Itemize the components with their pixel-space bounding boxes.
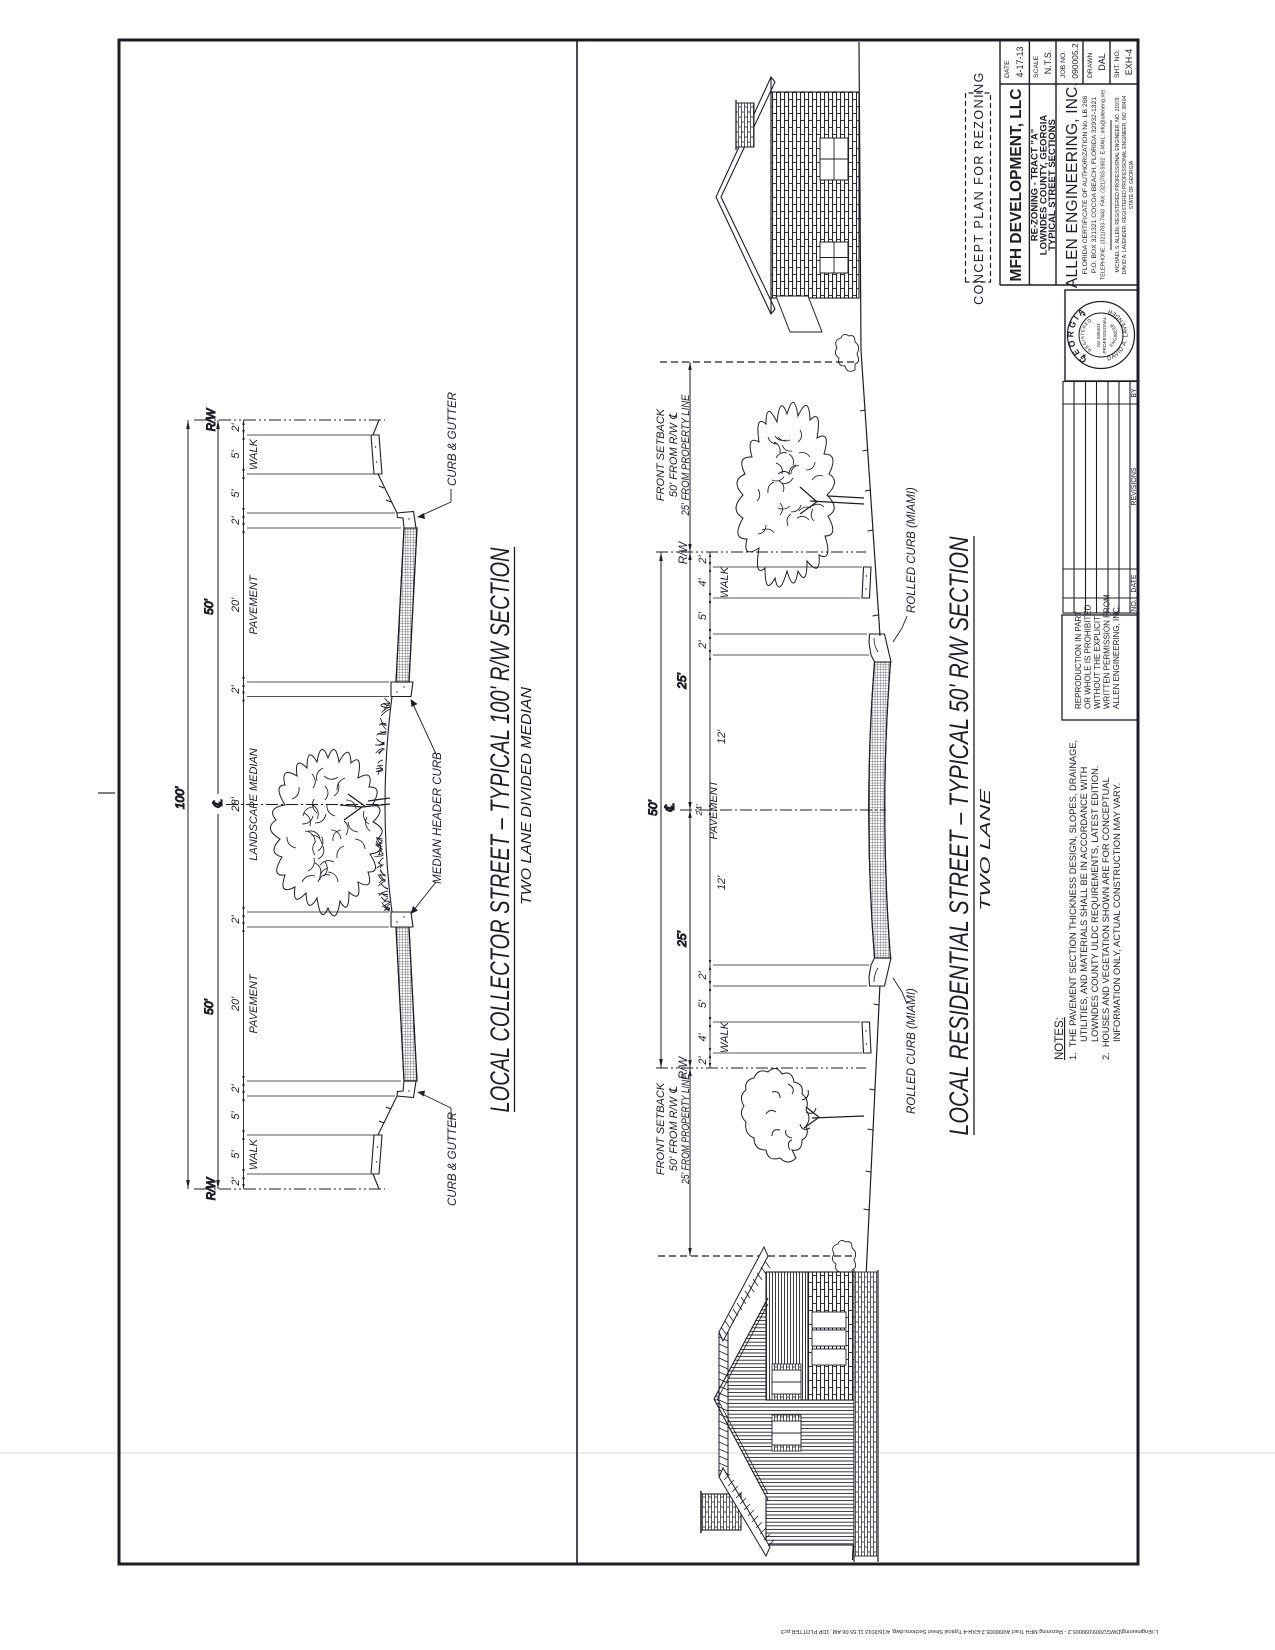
svg-text:TWO LANE: TWO LANE — [977, 787, 994, 911]
svg-text:5': 5' — [230, 1110, 242, 1119]
svg-text:OR WHOLE IS PROHIBITED: OR WHOLE IS PROHIBITED — [1084, 604, 1093, 709]
svg-text:5': 5' — [230, 1149, 242, 1158]
svg-text:℄: ℄ — [662, 803, 677, 812]
svg-text:ROLLED CURB (MIAMI): ROLLED CURB (MIAMI) — [906, 487, 918, 613]
svg-text:WALK: WALK — [719, 566, 731, 598]
svg-text:5': 5' — [230, 488, 242, 497]
svg-text:CURB & GUTTER: CURB & GUTTER — [447, 1112, 459, 1206]
svg-text:SHT. NO.: SHT. NO. — [1114, 49, 1121, 78]
svg-text:ALLEN ENGINEERING, INC.: ALLEN ENGINEERING, INC. — [1064, 82, 1081, 288]
svg-text:PAVEMENT: PAVEMENT — [248, 973, 260, 1033]
svg-text:2': 2' — [230, 515, 242, 525]
svg-text:5': 5' — [230, 449, 242, 458]
svg-text:TYPICAL STREET SECTIONS: TYPICAL STREET SECTIONS — [1047, 119, 1058, 251]
svg-text:4': 4' — [697, 1032, 709, 1041]
svg-text:ALLEN ENGINEERING, INC.: ALLEN ENGINEERING, INC. — [1112, 605, 1121, 709]
svg-text:REVISIONS: REVISIONS — [1131, 467, 1138, 505]
svg-text:WALK: WALK — [719, 1021, 731, 1053]
svg-text:★: ★ — [1081, 353, 1088, 358]
svg-text:R/W: R/W — [206, 1177, 218, 1201]
svg-text:FRONT SETBACK: FRONT SETBACK — [655, 408, 667, 501]
svg-text:℄: ℄ — [210, 799, 225, 808]
svg-text:JOB NO.: JOB NO. — [1060, 51, 1067, 78]
svg-text:WRITTEN PERMISSION FROM: WRITTEN PERMISSION FROM — [1103, 594, 1112, 709]
svg-text:MEDIAN HEADER CURB: MEDIAN HEADER CURB — [432, 752, 444, 884]
svg-text:25' FROM PROPERTY LINE: 25' FROM PROPERTY LINE — [680, 1073, 692, 1184]
svg-text:2': 2' — [697, 1055, 709, 1065]
svg-text:WITHOUT THE EXPLICIT: WITHOUT THE EXPLICIT — [1093, 616, 1102, 709]
svg-text:1. THE PAVEMENT SECTION THICK: 1. THE PAVEMENT SECTION THICKNESS DESIGN… — [1068, 740, 1078, 1060]
svg-text:INFORMATION ONLY, ACTUAL CONST: INFORMATION ONLY, ACTUAL CONSTRUCTION MA… — [1112, 783, 1122, 1042]
svg-text:R/W: R/W — [206, 408, 218, 432]
svg-text:STATE OF GEORGIA: STATE OF GEORGIA — [1129, 160, 1135, 209]
svg-text:2': 2' — [230, 684, 242, 694]
svg-text:100': 100' — [173, 786, 187, 809]
svg-text:25' FROM PROPERTY LINE: 25' FROM PROPERTY LINE — [680, 394, 692, 516]
svg-text:50': 50' — [646, 799, 660, 815]
svg-text:090005.2: 090005.2 — [1070, 43, 1080, 79]
svg-text:5': 5' — [697, 611, 709, 620]
svg-text:50': 50' — [202, 598, 216, 614]
svg-text:2': 2' — [230, 914, 242, 924]
svg-text:FRONT SETBACK: FRONT SETBACK — [655, 1082, 667, 1175]
svg-text:REPRODUCTION IN PART: REPRODUCTION IN PART — [1074, 611, 1083, 709]
svg-text:UTILITIES, AND MATERIALS SHALL: UTILITIES, AND MATERIALS SHALL BE IN ACC… — [1079, 767, 1089, 1042]
svg-text:50' FROM R/W ℄: 50' FROM R/W ℄ — [668, 412, 680, 497]
svg-text:MICHAEL S. ALLEN, REGISTERED P: MICHAEL S. ALLEN, REGISTERED PROFESSIONA… — [1115, 97, 1121, 272]
svg-text:25': 25' — [675, 930, 689, 947]
svg-text:CURB & GUTTER: CURB & GUTTER — [447, 392, 459, 486]
svg-text:WALK: WALK — [248, 438, 260, 470]
svg-text:DRAWN: DRAWN — [1087, 52, 1094, 78]
svg-text:TWO LANE DIVIDED MEDIAN: TWO LANE DIVIDED MEDIAN — [518, 687, 535, 905]
svg-text:20': 20' — [230, 996, 242, 1012]
svg-text:PAVEMENT: PAVEMENT — [708, 779, 720, 839]
svg-text:2': 2' — [697, 639, 709, 649]
svg-text:LOCAL RESIDENTIAL STREET – TYP: LOCAL RESIDENTIAL STREET – TYPICAL 50' R… — [944, 536, 974, 1136]
svg-text:2': 2' — [697, 554, 709, 564]
svg-text:NOTES:: NOTES: — [1054, 1017, 1066, 1060]
svg-text:2': 2' — [697, 970, 709, 980]
svg-text:20': 20' — [230, 597, 242, 613]
svg-text:2': 2' — [230, 1083, 242, 1093]
svg-text:★: ★ — [1081, 312, 1088, 317]
svg-text:TELEPHONE: (321)783-7443 FAX:: TELEPHONE: (321)783-7443 FAX: (321)783-5… — [1101, 89, 1107, 280]
svg-text:12': 12' — [716, 875, 728, 890]
svg-text:28': 28' — [230, 796, 242, 812]
svg-text:PROFESSIONAL: PROFESSIONAL — [1102, 316, 1108, 354]
svg-text:PAVEMENT: PAVEMENT — [248, 574, 260, 634]
svg-text:DATE: DATE — [1004, 60, 1011, 78]
svg-text:EXH-4: EXH-4 — [1124, 49, 1134, 76]
svg-text:BY: BY — [1131, 388, 1138, 398]
svg-text:ROLLED CURB (MIAMI): ROLLED CURB (MIAMI) — [906, 988, 918, 1114]
svg-text:CONCEPT PLAN FOR REZONING: CONCEPT PLAN FOR REZONING — [972, 71, 986, 305]
svg-text:4': 4' — [697, 577, 709, 586]
svg-text:N.T.S.: N.T.S. — [1043, 50, 1053, 75]
svg-text:25': 25' — [675, 672, 689, 689]
svg-text:SCALE: SCALE — [1033, 55, 1040, 78]
svg-text:WALK: WALK — [248, 1138, 260, 1170]
svg-text:LOCAL COLLECTOR STREET – TYPIC: LOCAL COLLECTOR STREET – TYPICAL 100' R/… — [485, 547, 515, 1113]
svg-text:12': 12' — [716, 729, 728, 744]
svg-text:LANDSCAPE MEDIAN: LANDSCAPE MEDIAN — [248, 748, 260, 861]
svg-text:DAL: DAL — [1097, 53, 1107, 71]
svg-text:4-17-13: 4-17-13 — [1015, 46, 1025, 77]
svg-text:P.O. BOX 321321 COCOA BEACH, F: P.O. BOX 321321 COCOA BEACH, FLORIDA 329… — [1091, 97, 1098, 274]
svg-text:MFH DEVELOPMENT, LLC: MFH DEVELOPMENT, LLC — [1008, 89, 1025, 282]
svg-text:No 036404: No 036404 — [1096, 323, 1102, 347]
svg-text:FLORIDA CERTIFICATE OF AUTHORI: FLORIDA CERTIFICATE OF AUTHORIZATION No.… — [1082, 95, 1089, 274]
svg-text:DAVID A. LAVENDER, REGISTERED: DAVID A. LAVENDER, REGISTERED PROFESSION… — [1122, 96, 1128, 275]
svg-text:NO.: NO. — [1131, 599, 1138, 612]
svg-text:50': 50' — [202, 998, 216, 1014]
svg-text:2': 2' — [230, 1176, 242, 1186]
svg-text:DATE: DATE — [1131, 574, 1138, 592]
svg-text:50' FROM R/W ℄: 50' FROM R/W ℄ — [668, 1086, 680, 1171]
svg-text:2. HOUSES AND VEGETATION SHOW: 2. HOUSES AND VEGETATION SHOWN ARE FOR C… — [1101, 777, 1111, 1060]
svg-text:L:\Engineering\DWG\2009\090005: L:\Engineering\DWG\2009\090005.2 - Rezon… — [781, 1628, 1158, 1634]
svg-text:24': 24' — [694, 804, 704, 816]
svg-text:2': 2' — [230, 422, 242, 432]
svg-text:5': 5' — [697, 999, 709, 1008]
svg-text:LOWNDES COUNTY ULDC REQUIREMEN: LOWNDES COUNTY ULDC REQUIREMENTS, LATEST… — [1090, 766, 1100, 1042]
